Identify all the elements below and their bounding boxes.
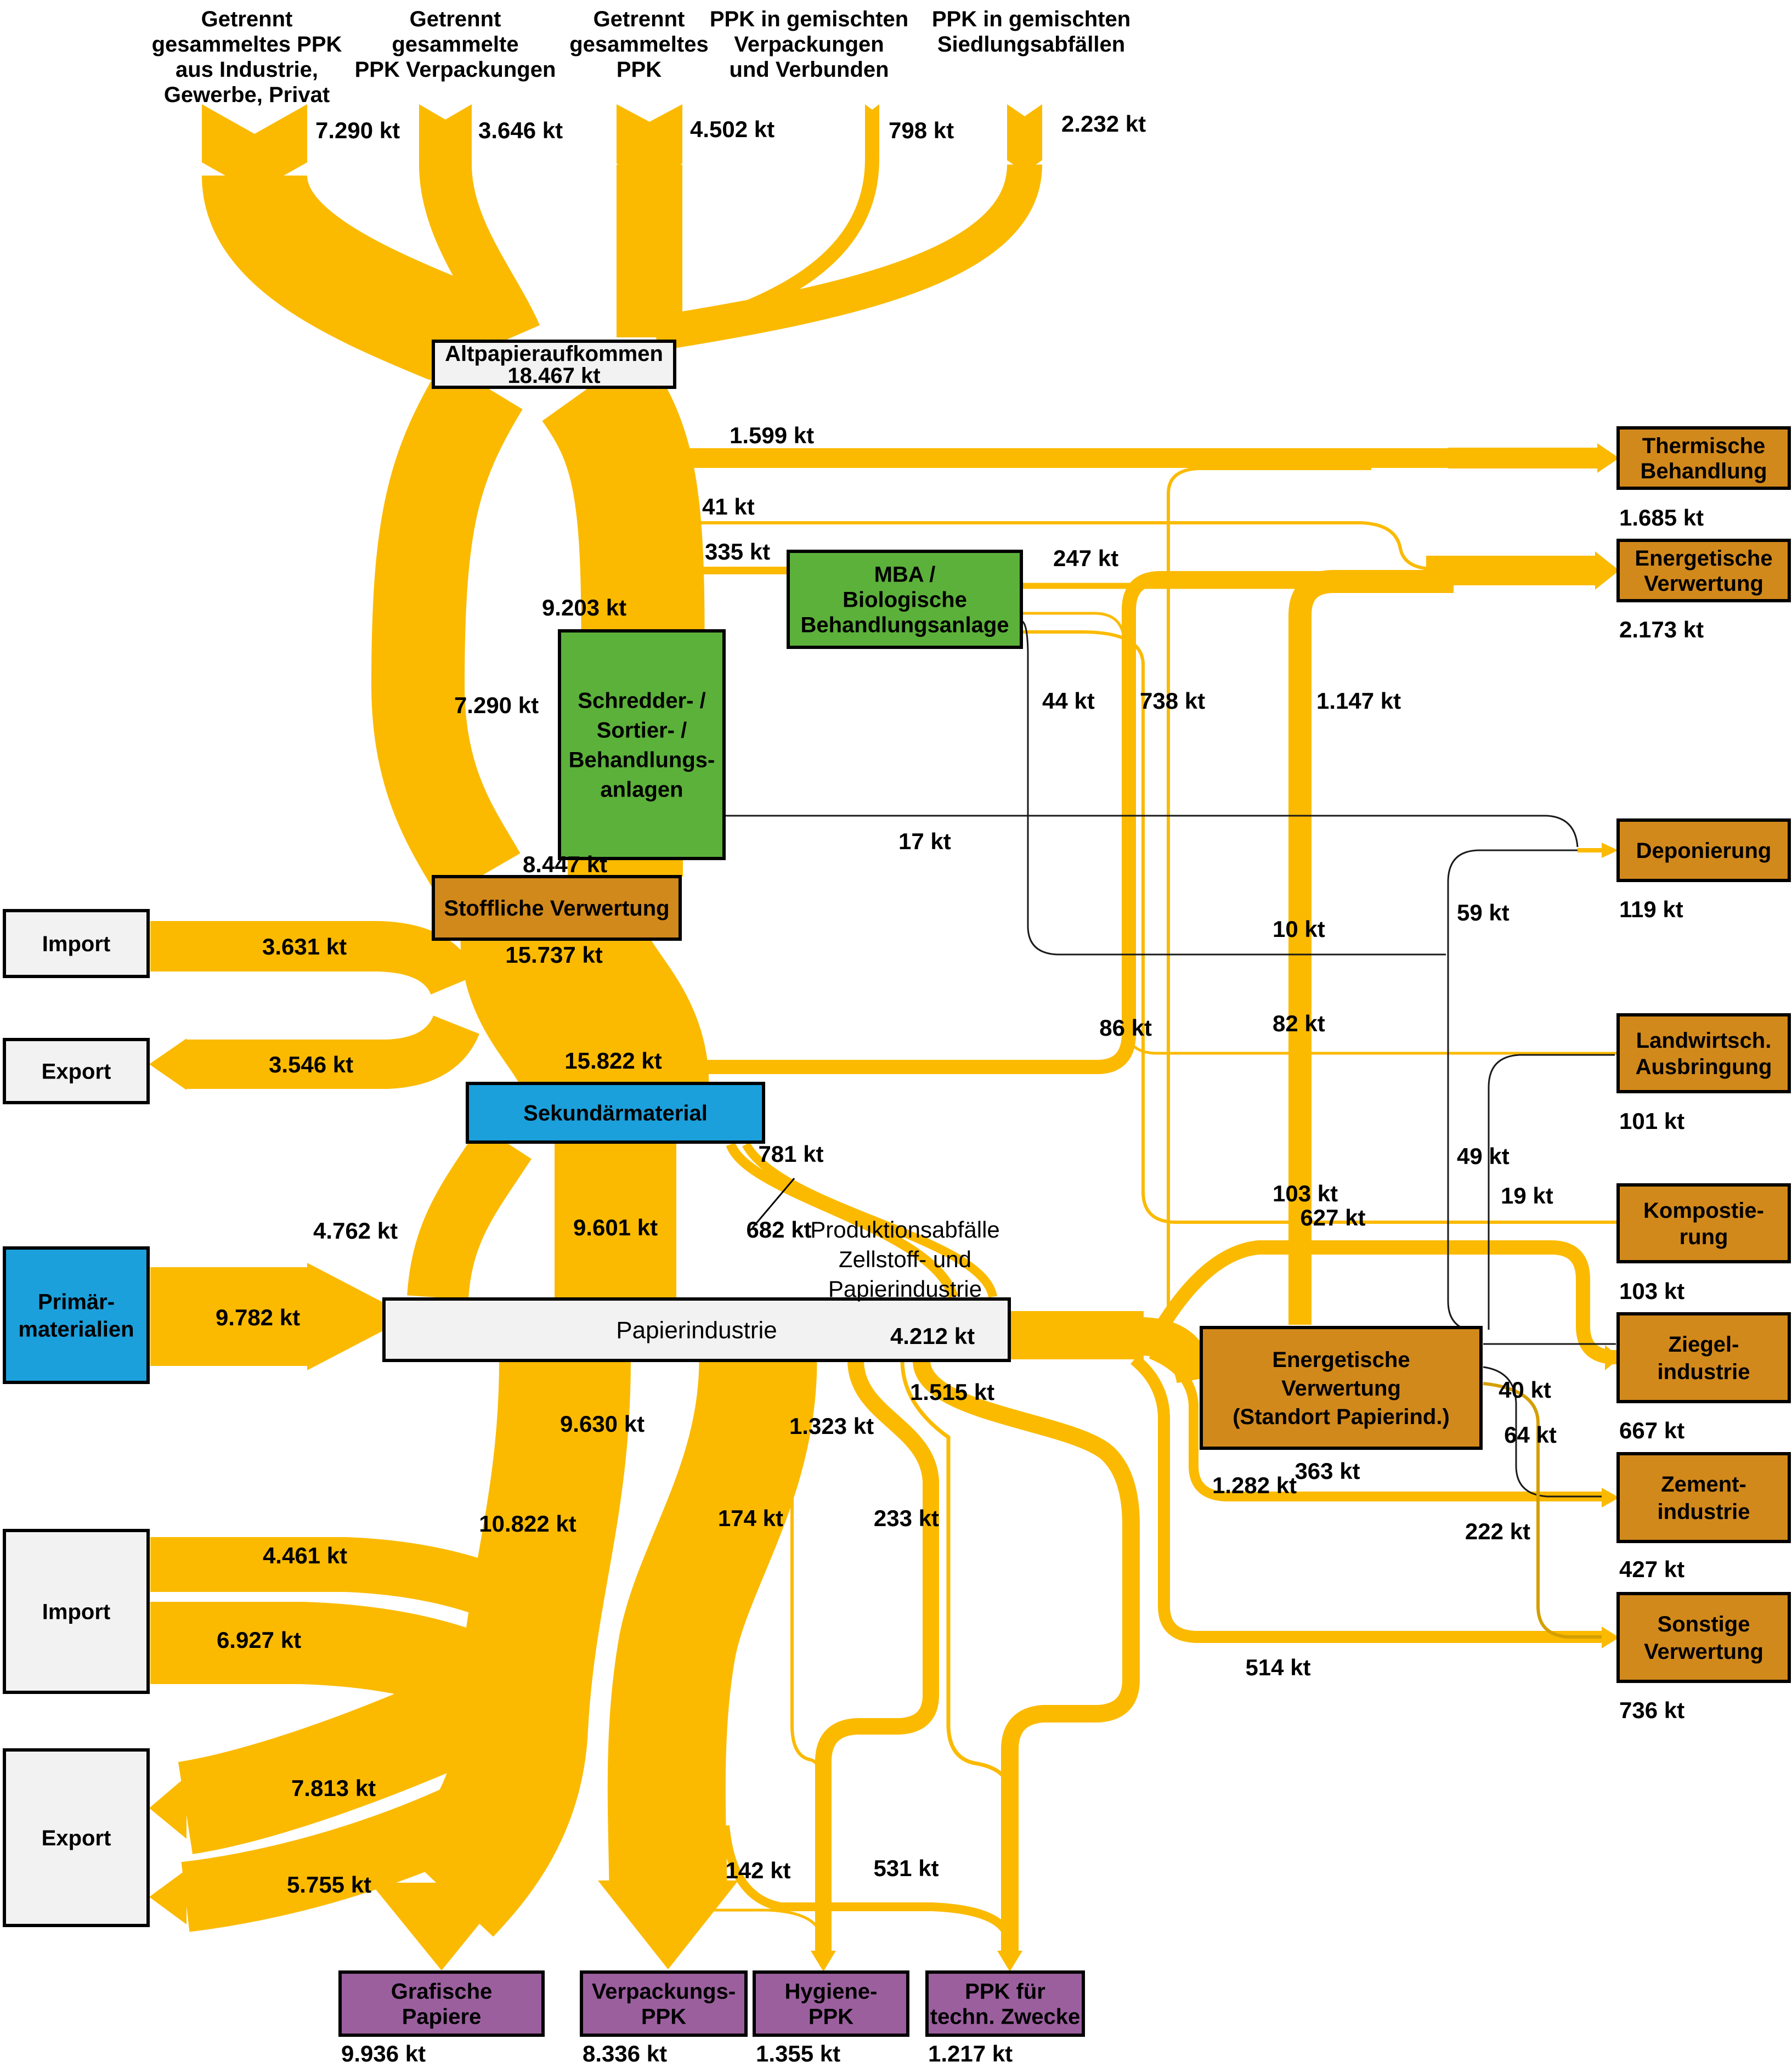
node-label-hygiene-1: PPK <box>809 2005 853 2029</box>
source-arrow-icon-src4 <box>865 104 879 165</box>
flow-value-f4461: 4.461 kt <box>263 1543 347 1568</box>
node-label-import1-0: Import <box>42 932 110 956</box>
node-value-verpackungs: 8.336 kt <box>583 2041 667 2066</box>
node-label-mba-0: MBA / <box>874 563 936 587</box>
flow-value-f222: 222 kt <box>1465 1518 1530 1544</box>
node-label-altpapier-1: 18.467 kt <box>507 364 600 388</box>
arrow-tip-icon-12 <box>811 1951 836 1972</box>
source-label-src4-0: PPK in gemischten <box>710 7 908 31</box>
node-label-landwirtsch-0: Landwirtsch. <box>1636 1029 1772 1053</box>
node-box-primaer <box>4 1248 148 1382</box>
flow-value-f4762: 4.762 kt <box>313 1218 398 1244</box>
node-label-export2-0: Export <box>42 1826 111 1850</box>
source-label-src1-0: Getrennt <box>201 7 293 31</box>
node-import1: Import <box>4 911 148 976</box>
node-label-thermische-0: Thermische <box>1642 434 1766 458</box>
node-value-sonstige: 736 kt <box>1619 1697 1684 1723</box>
sankey-diagram: Altpapieraufkommen18.467 ktMBA /Biologis… <box>0 0 1792 2067</box>
arrow-tip-icon-2 <box>1602 843 1618 858</box>
source-value-src4: 798 kt <box>889 117 954 143</box>
node-label-altpapier-0: Altpapieraufkommen <box>445 342 663 366</box>
flow-value-f531: 531 kt <box>873 1855 939 1881</box>
node-label-energetische-1: Verwertung <box>1644 572 1763 596</box>
node-value-thermische: 1.685 kt <box>1619 505 1704 530</box>
flow-value-f86: 86 kt <box>1099 1015 1152 1041</box>
flow-value-f142: 142 kt <box>725 1857 790 1883</box>
node-export2: Export <box>4 1750 148 1925</box>
node-value-landwirtsch: 101 kt <box>1619 1108 1684 1134</box>
node-hygiene: Hygiene-PPK1.355 kt <box>754 1972 908 2066</box>
flow-value-f9203: 9.203 kt <box>542 595 626 620</box>
arrow-tip-icon-0 <box>1597 443 1619 473</box>
source-label-src5-0: PPK in gemischten <box>932 7 1130 31</box>
flow-value-f9782: 9.782 kt <box>216 1304 300 1330</box>
node-label-primaer-1: materialien <box>18 1318 134 1342</box>
node-label-standort-2: (Standort Papierind.) <box>1233 1405 1450 1429</box>
source-label-src2-2: PPK Verpackungen <box>355 58 556 82</box>
flow-value-f514: 514 kt <box>1245 1654 1310 1680</box>
flow-value-f64: 64 kt <box>1504 1422 1557 1448</box>
node-box-zement <box>1618 1454 1789 1541</box>
flow-value-f41: 41 kt <box>702 494 755 519</box>
node-ziegel: Ziegel-industrie667 kt <box>1618 1314 1789 1443</box>
flow-value-f363: 363 kt <box>1294 1458 1360 1484</box>
node-label-schredder-2: Behandlungs- <box>569 748 715 772</box>
source-value-src2: 3.646 kt <box>478 117 563 143</box>
source-label-src5-1: Siedlungsabfällen <box>937 32 1125 57</box>
node-label-mba-1: Biologische <box>843 588 967 612</box>
flow-f1515p <box>922 1360 1131 1956</box>
node-label-standort-0: Energetische <box>1272 1348 1410 1372</box>
source-value-src1: 7.290 kt <box>315 117 400 143</box>
source-label-src3-1: gesammeltes <box>569 32 708 57</box>
flow-f531p <box>725 1826 1009 1943</box>
flow-value-f738: 738 kt <box>1140 688 1205 714</box>
flow-value-f7290mid: 7.290 kt <box>454 692 539 718</box>
node-label-zement-1: industrie <box>1658 1500 1750 1524</box>
node-kompostierung: Kompostie-rung103 kt <box>1618 1185 1789 1304</box>
source-label-src2-1: gesammelte <box>392 32 518 57</box>
flow-f9630p <box>666 1360 758 1883</box>
node-label-papier-0: Papierindustrie <box>616 1317 777 1343</box>
source-arrow-icon-src5 <box>1007 104 1042 172</box>
node-label-hygiene-0: Hygiene- <box>785 1980 878 2004</box>
flow-value-f247: 247 kt <box>1053 545 1118 571</box>
flow-f738p <box>705 578 1448 1067</box>
flow-value-f9630: 9.630 kt <box>560 1411 645 1437</box>
flow-value-f682: 682 kt <box>746 1217 811 1243</box>
flow-value-f8447: 8.447 kt <box>523 851 607 877</box>
node-value-standort: 1.282 kt <box>1212 1472 1297 1498</box>
node-value-grafische: 9.936 kt <box>341 2041 426 2066</box>
node-grafische: GrafischePapiere9.936 kt <box>340 1972 543 2066</box>
node-primaer: Primär-materialien <box>4 1248 148 1382</box>
node-verpackungs: Verpackungs-PPK8.336 kt <box>581 1972 746 2066</box>
node-label-stoffliche-0: Stoffliche Verwertung <box>444 896 669 920</box>
node-deponierung: Deponierung119 kt <box>1618 820 1789 922</box>
node-box-sonstige <box>1618 1594 1789 1681</box>
node-label-landwirtsch-1: Ausbringung <box>1636 1055 1772 1079</box>
node-box-ziegel <box>1618 1314 1789 1402</box>
node-label-mba-2: Behandlungsanlage <box>800 613 1009 637</box>
node-label-primaer-0: Primär- <box>38 1290 115 1314</box>
node-label-verpackungs-1: PPK <box>641 2005 686 2029</box>
flow-value-f82: 82 kt <box>1273 1010 1325 1036</box>
flow-value-f19: 19 kt <box>1501 1183 1553 1208</box>
arrow-tip-icon-1 <box>1595 551 1619 590</box>
flow-value-f10: 10 kt <box>1273 916 1325 942</box>
node-thermische: ThermischeBehandlung1.685 kt <box>1618 428 1789 530</box>
node-label-thermische-1: Behandlung <box>1640 459 1767 483</box>
node-label-import2-0: Import <box>42 1600 110 1624</box>
node-landwirtsch: Landwirtsch.Ausbringung101 kt <box>1618 1015 1789 1134</box>
source-label-src2-0: Getrennt <box>410 7 501 31</box>
node-label-standort-1: Verwertung <box>1281 1376 1401 1400</box>
node-export1: Export <box>4 1040 148 1103</box>
annotation-produktionsabfaelle-1: Zellstoff- und <box>839 1246 971 1272</box>
node-label-energetische-0: Energetische <box>1635 546 1772 571</box>
node-box-landwirtsch <box>1618 1015 1789 1092</box>
annotation-layer: ProduktionsabfälleZellstoff- undPapierin… <box>810 1217 1000 1302</box>
node-altpapier: Altpapieraufkommen18.467 kt <box>433 341 675 388</box>
flow-f4762p <box>438 1142 506 1297</box>
flow-value-f5755: 5.755 kt <box>287 1872 371 1897</box>
node-label-grafische-0: Grafische <box>391 1980 493 2004</box>
node-label-verpackungs-0: Verpackungs- <box>592 1980 736 2004</box>
node-label-sonstige-1: Verwertung <box>1644 1640 1763 1664</box>
source-label-src3-2: PPK <box>617 58 662 82</box>
annotation-produktionsabfaelle-0: Produktionsabfälle <box>810 1217 1000 1243</box>
node-value-energetische: 2.173 kt <box>1619 617 1704 642</box>
flow-value-f49: 49 kt <box>1457 1143 1510 1169</box>
flow-value-f1323: 1.323 kt <box>789 1413 874 1439</box>
node-value-hygiene: 1.355 kt <box>756 2041 840 2066</box>
node-label-ziegel-1: industrie <box>1658 1360 1750 1384</box>
flow-f86p <box>1168 468 1371 1321</box>
node-label-deponierung-0: Deponierung <box>1636 839 1772 863</box>
flow-value-f4212: 4.212 kt <box>890 1323 975 1349</box>
node-label-kompostierung-0: Kompostie- <box>1643 1199 1764 1223</box>
flow-value-f3546: 3.546 kt <box>269 1052 353 1077</box>
source-label-src3-0: Getrennt <box>593 7 685 31</box>
node-mba: MBA /BiologischeBehandlungsanlage <box>788 551 1021 647</box>
flow-value-f3631: 3.631 kt <box>262 934 347 959</box>
source-label-src4-2: und Verbunden <box>729 58 889 82</box>
arrow-tip-icon-8 <box>149 1776 186 1839</box>
node-box-schredder <box>559 631 724 859</box>
flow-value-f174: 174 kt <box>718 1505 783 1531</box>
node-label-export1-0: Export <box>42 1060 111 1084</box>
flow-value-f59: 59 kt <box>1457 900 1510 925</box>
flow-f7290col <box>418 385 483 877</box>
node-label-schredder-3: anlagen <box>600 778 683 802</box>
node-value-sekundaer: 15.822 kt <box>564 1048 662 1074</box>
source-label-src1-2: aus Industrie, <box>176 58 318 82</box>
flow-value-f9601: 9.601 kt <box>573 1215 658 1240</box>
source-label-src1-1: gesammeltes PPK <box>152 32 342 57</box>
node-import2: Import <box>4 1531 148 1692</box>
node-value-deponierung: 119 kt <box>1619 896 1683 922</box>
arrow-tip-icon-9 <box>149 1870 186 1924</box>
flow-value-f233: 233 kt <box>874 1505 939 1531</box>
node-energetische: EnergetischeVerwertung2.173 kt <box>1618 540 1789 642</box>
flow-value-f44: 44 kt <box>1042 688 1095 714</box>
node-schredder: Schredder- /Sortier- /Behandlungs-anlage… <box>559 631 724 859</box>
node-label-grafische-1: Papiere <box>402 2005 482 2029</box>
source-value-src5: 2.232 kt <box>1061 111 1146 137</box>
flows-layer <box>149 104 1620 1972</box>
arrow-tip-icon-6 <box>149 1038 186 1090</box>
sankey-svg: Altpapieraufkommen18.467 ktMBA /Biologis… <box>0 0 1792 2067</box>
node-value-ziegel: 667 kt <box>1619 1417 1684 1443</box>
flow-value-f103: 103 kt <box>1273 1181 1338 1206</box>
node-label-schredder-0: Schredder- / <box>578 689 705 713</box>
node-value-stoffliche: 15.737 kt <box>505 942 602 968</box>
node-sonstige: SonstigeVerwertung736 kt <box>1618 1594 1789 1723</box>
flow-value-f10822: 10.822 kt <box>479 1511 576 1537</box>
flow-value-f1147: 1.147 kt <box>1316 688 1401 714</box>
node-techn: PPK fürtechn. Zwecke1.217 kt <box>927 1972 1083 2066</box>
arrow-tip-icon-11 <box>598 1880 738 1969</box>
flow-f82p <box>1021 613 1617 1053</box>
flow-value-f335: 335 kt <box>705 539 770 564</box>
flow-value-f781: 781 kt <box>758 1141 823 1167</box>
annotation-produktionsabfaelle-2: Papierindustrie <box>828 1276 982 1302</box>
flow-value-f1599: 1.599 kt <box>730 422 814 448</box>
flow-h17 <box>725 816 1578 847</box>
node-label-schredder-1: Sortier- / <box>597 719 687 743</box>
arrow-tip-icon-13 <box>997 1951 1022 1972</box>
source-label-src4-1: Verpackungen <box>734 32 884 57</box>
source-label-src1-3: Gewerbe, Privat <box>164 83 330 107</box>
node-label-kompostierung-1: rung <box>1680 1225 1728 1249</box>
source-arrow-icon-src2 <box>419 104 472 180</box>
node-value-zement: 427 kt <box>1619 1556 1684 1582</box>
flow-value-f6927: 6.927 kt <box>217 1627 301 1653</box>
flow-value-f627: 627 kt <box>1300 1205 1365 1230</box>
flow-value-f7813: 7.813 kt <box>291 1775 376 1801</box>
flow-value-f40: 40 kt <box>1499 1377 1551 1403</box>
node-value-kompostierung: 103 kt <box>1619 1278 1684 1304</box>
node-value-techn: 1.217 kt <box>928 2041 1013 2066</box>
source-value-src3: 4.502 kt <box>690 116 775 142</box>
node-label-techn-1: techn. Zwecke <box>930 2005 1080 2029</box>
flow-h44 <box>1021 621 1446 955</box>
node-label-sonstige-0: Sonstige <box>1658 1612 1750 1636</box>
node-label-zement-0: Zement- <box>1661 1472 1746 1496</box>
node-label-techn-0: PPK für <box>965 1980 1045 2004</box>
flow-value-f1515: 1.515 kt <box>910 1379 994 1405</box>
node-label-sekundaer-0: Sekundärmaterial <box>523 1102 708 1126</box>
node-zement: Zement-industrie427 kt <box>1618 1454 1789 1582</box>
node-box-kompostierung <box>1618 1185 1789 1262</box>
flow-value-f17: 17 kt <box>898 828 951 854</box>
node-label-ziegel-0: Ziegel- <box>1669 1332 1739 1357</box>
